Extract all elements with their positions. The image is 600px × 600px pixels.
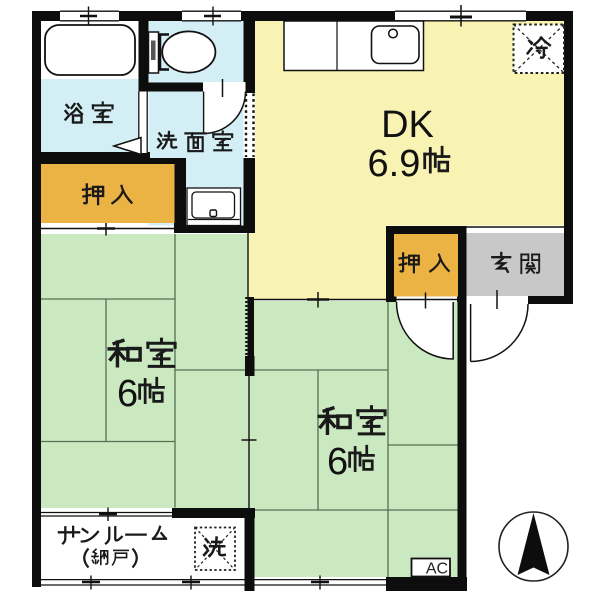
svg-text:6.9: 6.9 <box>368 143 421 185</box>
svg-text:DK: DK <box>381 104 434 146</box>
svg-text:6: 6 <box>117 373 138 415</box>
svg-text:AC: AC <box>426 561 448 578</box>
svg-text:6: 6 <box>327 441 348 483</box>
